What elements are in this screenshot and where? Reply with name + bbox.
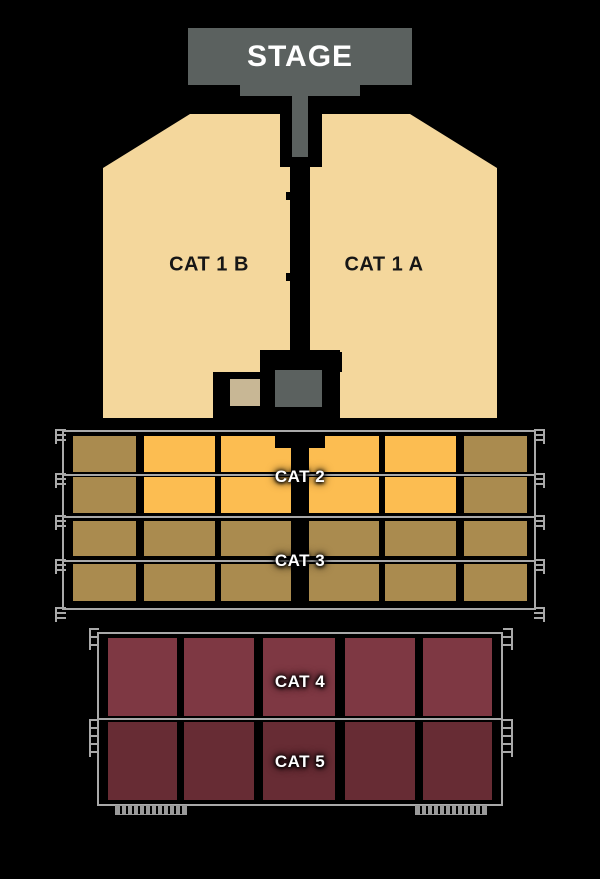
section-label-cat-3: CAT 3	[275, 551, 325, 571]
section-label-cat-2: CAT 2	[275, 467, 325, 487]
stairs-icon	[534, 515, 545, 530]
stairs-icon	[415, 805, 487, 815]
cat3-lower-row-block[interactable]	[385, 564, 456, 601]
aisle-notch	[286, 273, 291, 281]
row-rail	[62, 516, 536, 518]
cat5-row-block[interactable]	[423, 722, 492, 800]
cat2-upper-row-block[interactable]	[385, 436, 456, 472]
cat2-lower-row-block[interactable]	[73, 477, 136, 513]
stairs-icon	[534, 473, 545, 488]
stairs-icon	[89, 628, 99, 650]
stairs-icon	[115, 805, 187, 815]
stairs-icon	[89, 719, 99, 757]
stage: STAGE	[188, 28, 412, 85]
stairs-icon	[534, 429, 545, 444]
cat4-row-block[interactable]	[184, 638, 254, 716]
section-label-cat-4: CAT 4	[275, 672, 325, 692]
cat2-upper-row-block[interactable]	[464, 436, 527, 472]
stage-runway	[292, 96, 308, 157]
row-rail	[97, 718, 503, 720]
stairs-icon	[534, 559, 545, 574]
cat4-row-block[interactable]	[423, 638, 492, 716]
cat2-upper-row-block[interactable]	[73, 436, 136, 472]
foh-desk-gray	[275, 370, 322, 407]
cat2-lower-row-block[interactable]	[464, 477, 527, 513]
stairs-icon	[55, 515, 66, 530]
cat5-row-block[interactable]	[345, 722, 415, 800]
stage-label: STAGE	[247, 40, 353, 74]
cat5-row-block[interactable]	[108, 722, 177, 800]
cat2-lower-row-block[interactable]	[144, 477, 215, 513]
section-label-cat-5: CAT 5	[275, 752, 325, 772]
stairs-icon	[534, 607, 545, 622]
cat2-lower-row-block[interactable]	[385, 477, 456, 513]
cat3-lower-row-block[interactable]	[144, 564, 215, 601]
cat4-row-block[interactable]	[108, 638, 177, 716]
stairs-icon	[55, 429, 66, 444]
cat3-upper-row-block[interactable]	[144, 521, 215, 556]
cat3-upper-row-block[interactable]	[73, 521, 136, 556]
stage-apron	[240, 85, 360, 96]
aisle-notch	[286, 192, 291, 200]
section-label-cat-1-a: CAT 1 A	[344, 254, 423, 277]
stairs-icon	[503, 719, 513, 757]
row-rail	[62, 608, 536, 610]
row-rail	[62, 430, 536, 432]
cat3-upper-row-block[interactable]	[464, 521, 527, 556]
cat4-row-block[interactable]	[345, 638, 415, 716]
cat2-upper-row-block[interactable]	[144, 436, 215, 472]
seating-chart: STAGE CAT 1 B CAT 1 A CAT 2 CAT 3 CAT 4 …	[0, 0, 600, 879]
stairs-icon	[55, 473, 66, 488]
cat5-row-block[interactable]	[184, 722, 254, 800]
stairs-icon	[55, 607, 66, 622]
section-label-cat-1-b: CAT 1 B	[169, 254, 249, 277]
foh-desk-tan	[230, 379, 260, 406]
stairs-icon	[55, 559, 66, 574]
stairs-icon	[503, 628, 513, 650]
cat3-upper-row-block[interactable]	[385, 521, 456, 556]
cat3-lower-row-block[interactable]	[73, 564, 136, 601]
foh-divider-line	[340, 352, 342, 372]
cat3-lower-row-block[interactable]	[464, 564, 527, 601]
